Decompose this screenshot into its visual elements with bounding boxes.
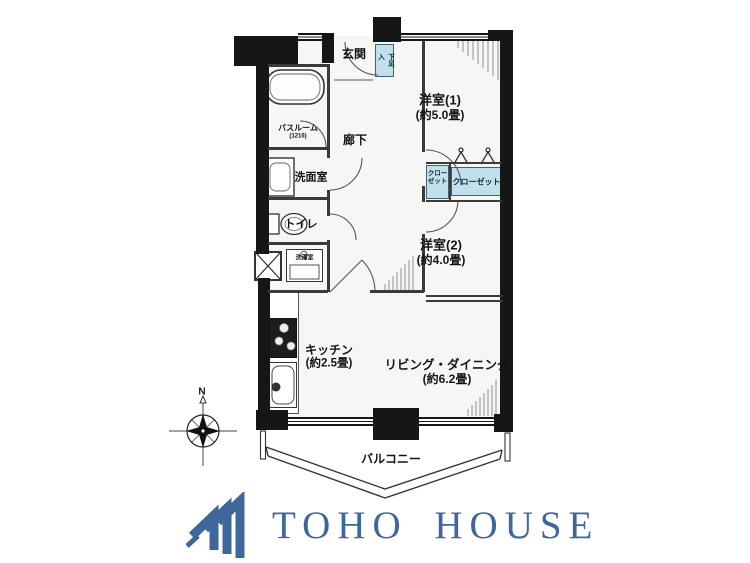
partition-wall [327,147,330,158]
company-logo: TOHO HOUSE [186,492,599,560]
wall-segment [234,36,298,66]
bathroom-size: (1216) [289,134,306,141]
room1-size: (約5.0畳) [416,109,465,123]
partition-wall [327,66,330,147]
kitchen-size: (約2.5畳) [306,357,353,370]
partition-wall [422,186,425,202]
floorplan-canvas: 下足入 クロー ゼット クローゼット [0,0,750,563]
wall-segment [256,410,288,430]
wall-segment [256,66,269,254]
window [419,417,494,426]
partition-wall [426,200,502,202]
partition-wall [268,242,330,245]
wall-segment [373,17,401,42]
bathroom-label: バスルーム [278,123,318,132]
compass-icon [169,396,237,466]
window [298,33,322,41]
living-dining-label: リビング・ダイニング [384,358,509,372]
wall-segment [373,408,419,440]
partition-wall [268,197,330,200]
wall-segment [322,33,334,63]
toilet-label: トイレ [285,219,318,232]
partition-wall [370,290,424,293]
kitchen-label: キッチン [305,344,353,358]
logo-mark-icon [186,492,256,560]
compass-north-label: N [198,386,205,398]
partition-wall [426,162,502,164]
partition-wall [426,295,503,297]
partition-wall [327,190,330,216]
washroom-label: 洗面室 [295,172,328,185]
room2-size: (約4.0畳) [417,254,466,268]
laundry-label: 洗濯室 [295,256,313,263]
balcony-label: バルコニー [361,453,421,467]
company-name: TOHO HOUSE [272,493,599,559]
room2-label: 洋室(2) [420,239,462,254]
wall-segment [494,414,513,432]
floorplan-graphics [0,0,750,563]
partition-wall [268,147,330,150]
living-dining-size: (約6.2畳) [423,373,472,387]
partition-wall [268,64,330,67]
room1-label: 洋室(1) [419,94,461,109]
stove-burners-icon [275,324,295,351]
wall-segment [258,278,270,414]
window [401,33,488,41]
window [288,417,373,426]
partition-wall [426,300,503,302]
partition-wall [327,240,330,292]
washroom-sink-icon [266,158,294,196]
sink-bowl-icon [272,366,295,404]
partition-wall [268,290,328,293]
hallway-label: 廊下 [343,134,367,148]
bathtub-icon [266,70,324,104]
entrance-label: 玄関 [342,48,366,62]
partition-wall [449,164,451,200]
